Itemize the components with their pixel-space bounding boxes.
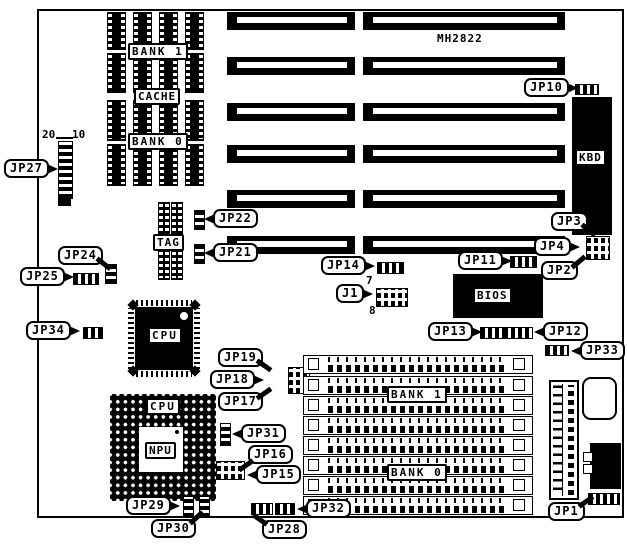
callout-jp15-text: JP15 — [262, 467, 295, 481]
simm-clip — [308, 379, 319, 391]
pointer-icon — [47, 164, 58, 174]
callout-jp2: JP2 — [541, 261, 578, 280]
isa-slot-segment — [227, 190, 355, 208]
callout-jp30-text: JP30 — [157, 521, 190, 535]
jumper-jp14 — [377, 262, 404, 274]
cpu-qfp-label: CPU — [148, 327, 182, 344]
simm-clip — [308, 479, 319, 491]
callout-jp10-text: JP10 — [530, 80, 563, 94]
kbd-label: KBD — [575, 149, 606, 166]
simm-bank0-label: BANK 0 — [387, 464, 447, 481]
isa-slot-segment — [363, 57, 565, 75]
jp27-pin10-label: 10 — [72, 128, 85, 141]
callout-jp31: JP31 — [241, 424, 286, 443]
isa-slot-segment — [227, 103, 355, 121]
callout-jp31-text: JP31 — [247, 426, 280, 440]
isa-slot-segment — [363, 12, 565, 30]
jp27-strip-end — [58, 197, 71, 206]
qfp-pins-right — [194, 308, 200, 369]
pointer-icon — [571, 346, 582, 356]
isa-slot-segment — [363, 190, 565, 208]
callout-jp13: JP13 — [428, 322, 473, 341]
jumper-jp10 — [575, 84, 599, 95]
pointer-icon — [169, 501, 180, 511]
qfp-pins-top — [136, 300, 192, 306]
j1-pin8-label: 8 — [369, 304, 376, 317]
j1-pin7-label: 7 — [366, 274, 373, 287]
callout-jp21: JP21 — [213, 243, 258, 262]
jumper-jp11 — [510, 256, 537, 268]
callout-jp25-text: JP25 — [26, 269, 59, 283]
pointer-icon — [69, 326, 80, 336]
callout-jp19-text: JP19 — [224, 350, 257, 364]
callout-jp18: JP18 — [210, 370, 255, 389]
dip-chip — [159, 144, 178, 186]
callout-jp16: JP16 — [248, 445, 293, 464]
tag-label: TAG — [153, 234, 184, 251]
qfp-pins-bottom — [136, 371, 192, 377]
simm-clip — [308, 399, 319, 411]
pointer-icon — [534, 327, 545, 337]
callout-j1-text: J1 — [342, 286, 358, 300]
callout-jp24-text: JP24 — [64, 248, 97, 262]
header-j1 — [376, 288, 408, 307]
callout-jp3-text: JP3 — [557, 214, 582, 228]
jumper-jp25 — [73, 273, 99, 285]
callout-jp25: JP25 — [20, 267, 65, 286]
simm-clip — [513, 439, 525, 451]
isa-slot-segment — [363, 145, 565, 163]
pointer-icon — [247, 470, 258, 480]
callout-jp2-text: JP2 — [547, 263, 572, 277]
callout-jp14: JP14 — [321, 256, 366, 275]
callout-jp29-text: JP29 — [132, 498, 165, 512]
jumper-jp29 — [183, 496, 194, 518]
qfp-pin1-dot — [180, 312, 188, 320]
pointer-icon — [567, 83, 578, 93]
simm-clip — [308, 439, 319, 451]
callout-jp27: JP27 — [4, 159, 49, 178]
callout-jp11-text: JP11 — [464, 253, 497, 267]
simm-socket — [303, 355, 533, 374]
simm-clip — [513, 419, 525, 431]
callout-jp17-text: JP17 — [224, 394, 257, 408]
pointer-icon — [232, 429, 243, 439]
jumper-block-jp2-jp3-jp4 — [586, 236, 610, 260]
qfp-pins-left — [128, 308, 134, 369]
callout-jp12: JP12 — [543, 322, 588, 341]
simm-clip — [513, 459, 525, 471]
dip-chip — [133, 144, 152, 186]
callout-jp4-text: JP4 — [540, 239, 565, 253]
callout-jp1-text: JP1 — [554, 504, 579, 518]
callout-jp19: JP19 — [218, 348, 263, 367]
callout-jp22: JP22 — [213, 209, 258, 228]
callout-jp24: JP24 — [58, 246, 103, 265]
din-notch — [583, 452, 593, 462]
simm-clip — [513, 499, 525, 511]
cache-label: CACHE — [134, 88, 180, 105]
jumper-jp31 — [220, 423, 231, 446]
simm-clip — [308, 419, 319, 431]
jp27-pin1-mark — [56, 137, 73, 139]
callout-jp1: JP1 — [548, 502, 585, 521]
jp27-pin-strip — [58, 141, 73, 199]
isa-slot-segment — [363, 103, 565, 121]
cpu-pga-label: CPU — [146, 398, 180, 415]
pointer-icon — [364, 261, 375, 271]
isa-slot-segment — [227, 57, 355, 75]
dip-chip — [107, 144, 126, 186]
bank0-chips-label: BANK 0 — [128, 133, 188, 150]
pointer-icon — [204, 214, 215, 224]
din-connector — [590, 443, 621, 489]
dip-chip — [185, 53, 204, 93]
callout-jp21-text: JP21 — [219, 245, 252, 259]
pointer-icon — [501, 256, 512, 266]
motherboard-diagram: BANK 1 CACHE BANK 0 MH2822 KBD JP10 20 1… — [0, 0, 627, 545]
jumper-jp32 — [275, 503, 295, 515]
isa-slot-segment — [227, 12, 355, 30]
isa-slot-segment — [227, 145, 355, 163]
callout-jp34-text: JP34 — [32, 323, 65, 337]
dip-chip — [185, 12, 204, 50]
pointer-icon — [569, 242, 580, 252]
simm-clip — [513, 379, 525, 391]
pointer-icon — [471, 327, 482, 337]
pointer-icon — [297, 504, 308, 514]
pga-pin1-dot — [175, 430, 179, 434]
jumper-jp33 — [545, 345, 569, 356]
dip-chip — [107, 12, 126, 50]
jp27-pin20-label: 20 — [42, 128, 55, 141]
callout-jp30: JP30 — [151, 519, 196, 538]
callout-jp3: JP3 — [551, 212, 588, 231]
callout-jp29: JP29 — [126, 496, 171, 515]
simm-clip — [513, 399, 525, 411]
simm-clip — [513, 358, 525, 370]
callout-jp32: JP32 — [306, 499, 351, 518]
callout-jp14-text: JP14 — [327, 258, 360, 272]
simm-socket — [303, 436, 533, 455]
pointer-icon — [204, 248, 215, 258]
callout-jp27-text: JP27 — [10, 161, 43, 175]
callout-jp28: JP28 — [262, 520, 307, 539]
callout-jp17: JP17 — [218, 392, 263, 411]
callout-jp18-text: JP18 — [216, 372, 249, 386]
callout-jp16-text: JP16 — [254, 447, 287, 461]
callout-jp15: JP15 — [256, 465, 301, 484]
callout-jp11: JP11 — [458, 251, 503, 270]
board-model-text: MH2822 — [437, 32, 483, 45]
callout-jp22-text: JP22 — [219, 211, 252, 225]
pointer-icon — [362, 289, 373, 299]
simm-socket — [303, 416, 533, 435]
pointer-icon — [253, 375, 264, 385]
callout-j1: J1 — [336, 284, 364, 303]
callout-jp13-text: JP13 — [434, 324, 467, 338]
callout-jp10: JP10 — [524, 78, 569, 97]
power-connector — [549, 380, 579, 500]
callout-jp33-text: JP33 — [586, 343, 619, 357]
jumper-jp13 — [480, 327, 504, 339]
bios-label: BIOS — [473, 287, 512, 304]
dip-chip — [185, 100, 204, 141]
jumper-jp12 — [503, 327, 533, 339]
dip-chip — [107, 100, 126, 141]
din-notch — [583, 464, 593, 474]
battery-outline — [582, 377, 617, 420]
simm-clip — [513, 479, 525, 491]
callout-jp32-text: JP32 — [312, 501, 345, 515]
callout-jp33: JP33 — [580, 341, 625, 360]
simm-bank1-label: BANK 1 — [387, 386, 447, 403]
bank1-chips-label: BANK 1 — [128, 43, 188, 60]
callout-jp34: JP34 — [26, 321, 71, 340]
jumper-jp34 — [83, 327, 103, 339]
callout-jp12-text: JP12 — [549, 324, 582, 338]
simm-clip — [308, 459, 319, 471]
callout-jp28-text: JP28 — [268, 522, 301, 536]
pointer-icon — [63, 272, 74, 282]
simm-clip — [308, 358, 319, 370]
dip-chip — [107, 53, 126, 93]
dip-chip — [185, 144, 204, 186]
npu-label: NPU — [145, 442, 176, 459]
callout-jp4: JP4 — [534, 237, 571, 256]
